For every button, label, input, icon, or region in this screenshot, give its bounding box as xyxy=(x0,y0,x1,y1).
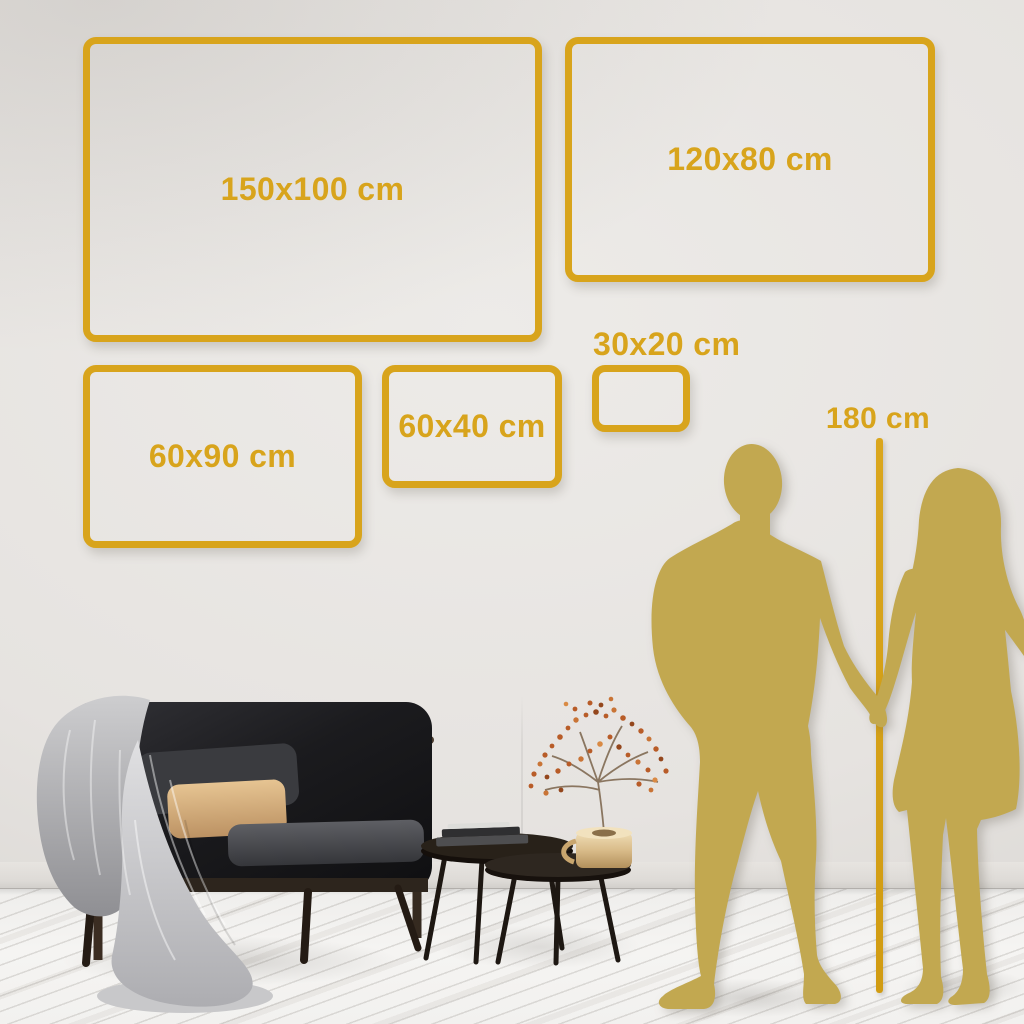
furniture-scene xyxy=(0,660,700,1024)
couple-silhouette xyxy=(620,428,1024,1018)
size-frame-60x90cm: 60x90 cm xyxy=(83,365,362,548)
vase-opening xyxy=(592,830,616,837)
size-frame-60x40cm: 60x40 cm xyxy=(382,365,562,488)
size-label-120x80cm: 120x80 cm xyxy=(667,141,833,178)
woman-body xyxy=(869,560,1019,1005)
table-leg xyxy=(498,875,515,962)
size-frame-120x80cm: 120x80 cm xyxy=(565,37,935,282)
sofa-seat-cushion xyxy=(227,819,424,866)
size-guide-image: 150x100 cm 120x80 cm 60x90 cm 60x40 cm 3… xyxy=(0,0,1024,1024)
size-label-150x100cm: 150x100 cm xyxy=(221,171,405,208)
woman-silhouette xyxy=(869,468,1024,1005)
books-stack xyxy=(436,821,529,846)
man-body xyxy=(652,520,888,1009)
table-leg xyxy=(556,877,558,963)
sofa-leg xyxy=(304,892,308,960)
size-label-60x90cm: 60x90 cm xyxy=(149,438,296,475)
size-frame-30x20cm: 30x20 cm xyxy=(592,365,690,432)
size-label-30x20cm: 30x20 cm xyxy=(593,326,740,363)
size-label-60x40cm: 60x40 cm xyxy=(398,408,545,445)
table-leg xyxy=(600,873,618,960)
man-silhouette xyxy=(652,442,888,1009)
size-frame-150x100cm: 150x100 cm xyxy=(83,37,542,342)
table-leg xyxy=(476,860,482,962)
